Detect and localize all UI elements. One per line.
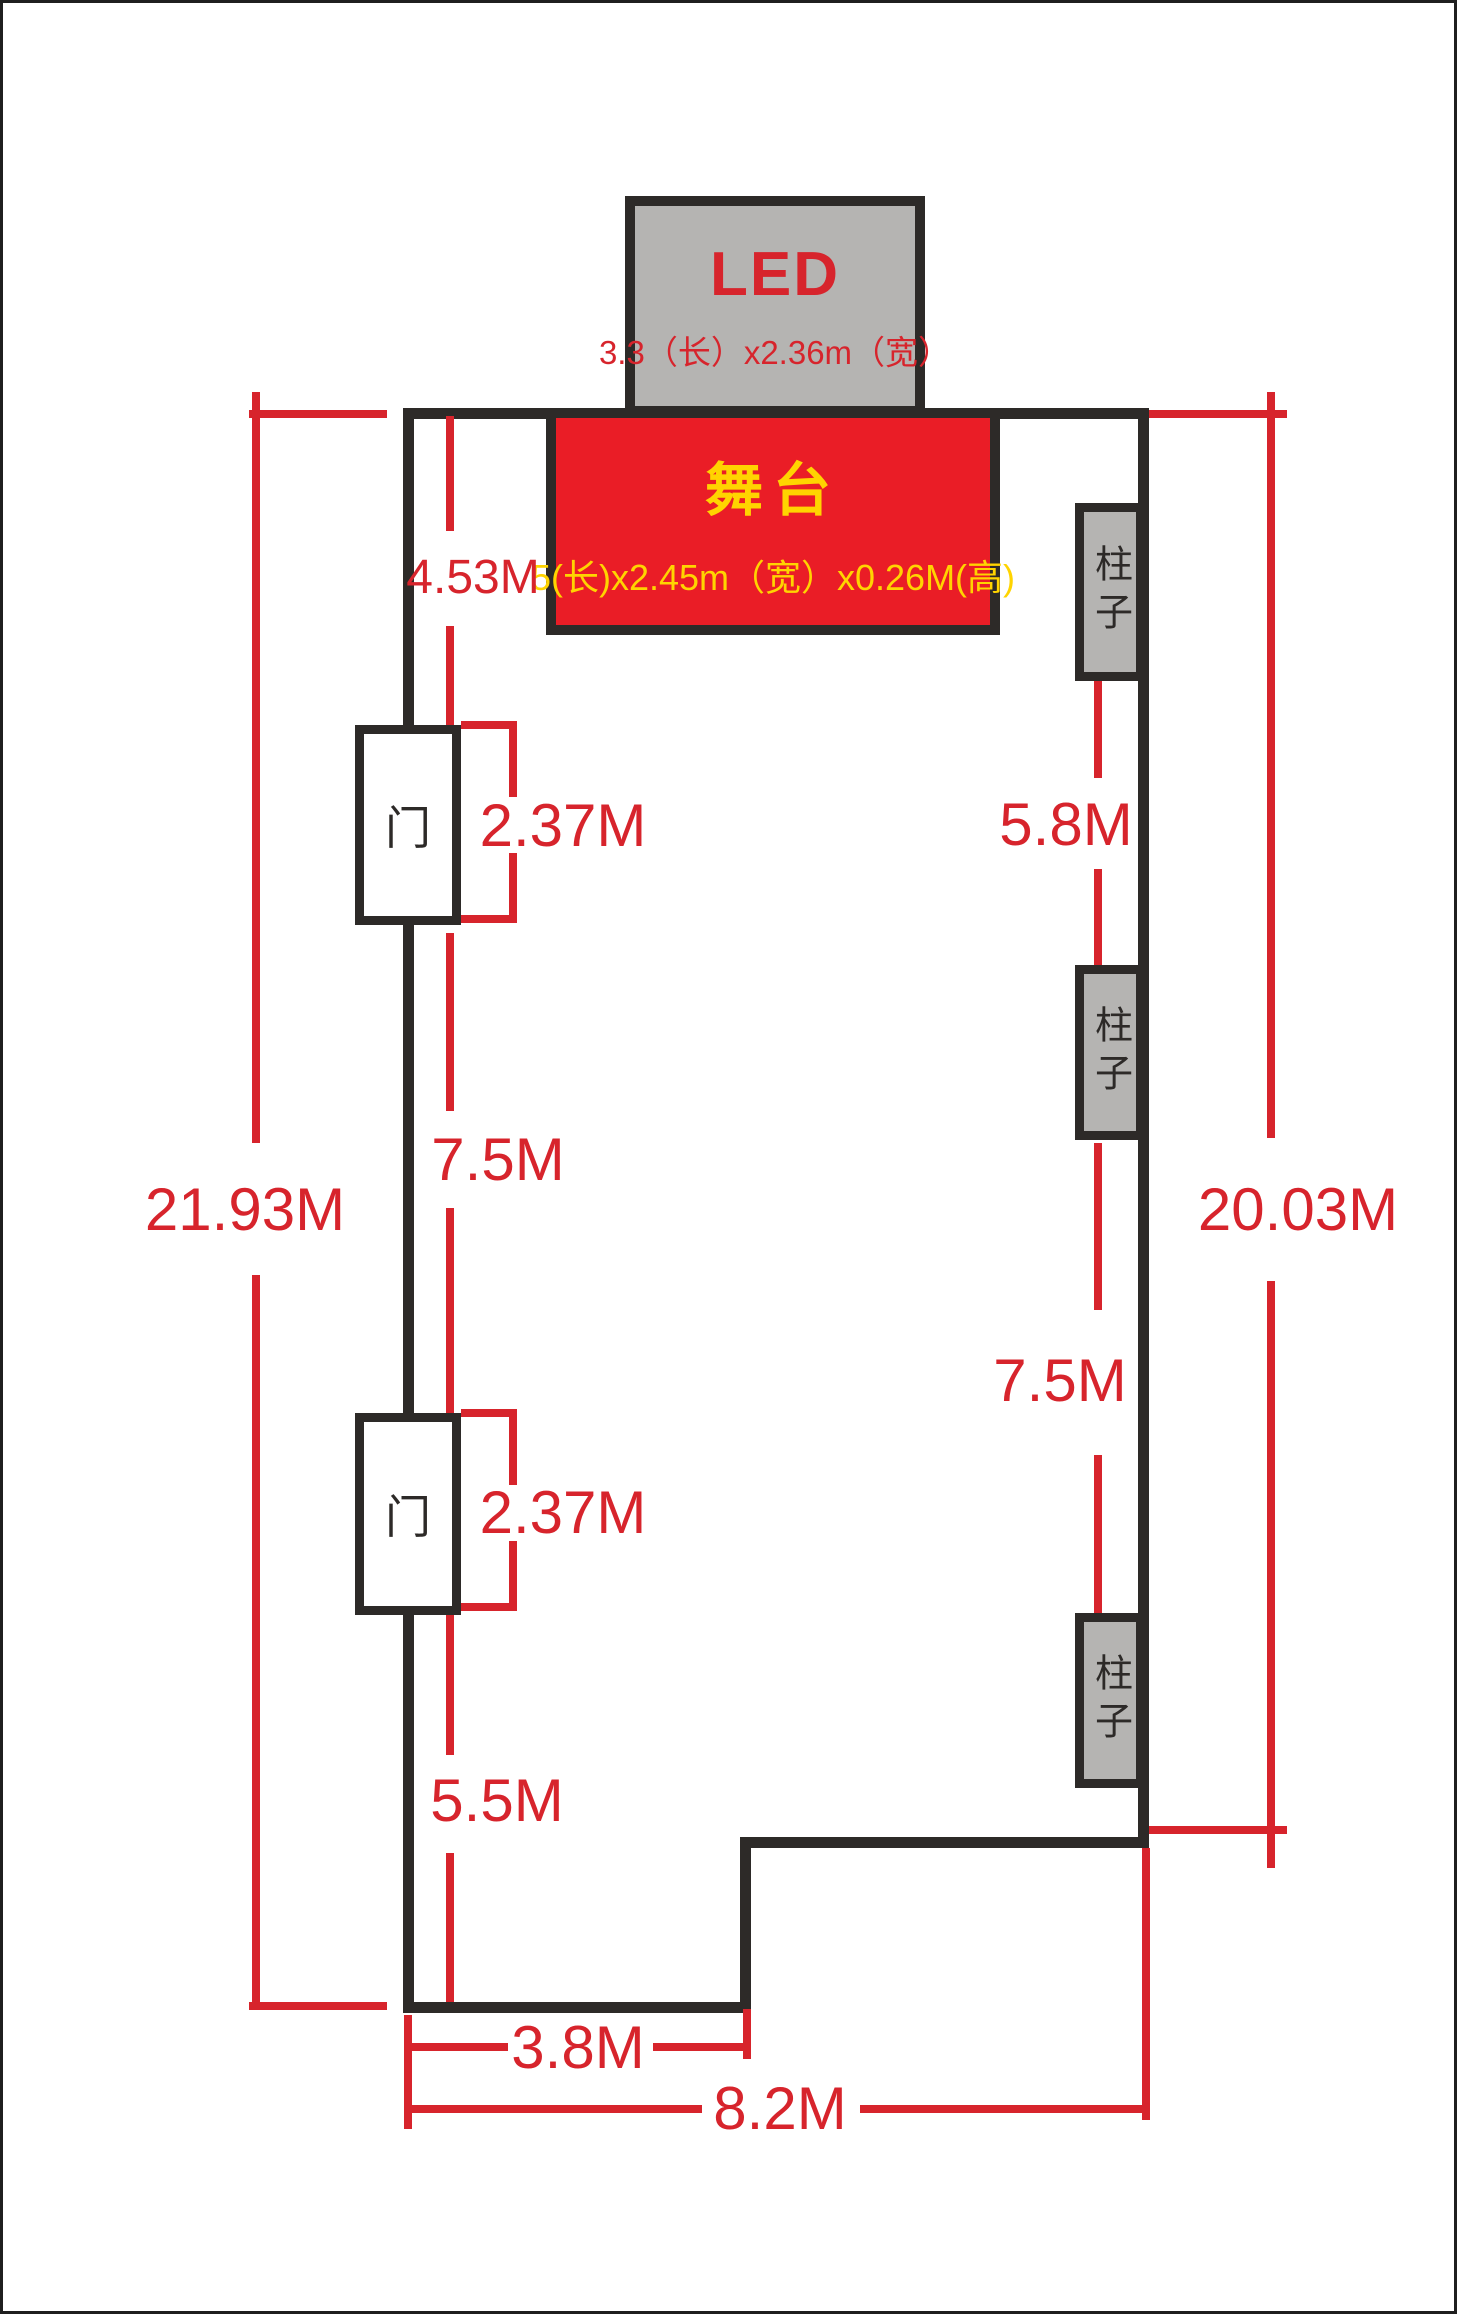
dim-8-2-label: 8.2M — [670, 2079, 890, 2139]
stage: 舞台 5(长)x2.45m（宽）x0.26M(高) — [546, 408, 1000, 635]
dim-8-2-line-a — [412, 2105, 702, 2113]
dim-5-5-label: 5.5M — [387, 1771, 607, 1831]
dim-left-total-line-upper — [252, 410, 260, 1143]
dim-8-2-line-b — [860, 2105, 1147, 2113]
dim-left-7-5-line-b — [446, 1208, 454, 1413]
led-screen: LED 3.3（长）x2.36m（宽） — [625, 196, 925, 416]
dim-door1-line-a — [509, 721, 517, 797]
dim-door1-label: 2.37M — [458, 796, 668, 856]
column-1: 柱子 — [1075, 503, 1145, 681]
dim-door2-label: 2.37M — [458, 1483, 668, 1543]
dim-door2-line-b — [509, 1541, 517, 1611]
dim-right-7-5-label: 7.5M — [950, 1351, 1170, 1411]
column-2-label: 柱子 — [1083, 1005, 1138, 1101]
dim-4-53-line-b — [446, 626, 454, 725]
stage-size-label: 5(长)x2.45m（宽）x0.26M(高) — [531, 549, 1015, 601]
dim-8-2-tick-right — [1142, 1848, 1150, 2120]
dim-right-total-tick-bottom — [1149, 1826, 1287, 1834]
door-1: 门 — [355, 725, 461, 925]
column-1-label: 柱子 — [1083, 544, 1138, 640]
bottom-right-wall — [740, 1837, 1149, 1848]
dim-right-total-line-upper — [1267, 410, 1275, 1138]
dim-door1-line-b — [509, 853, 517, 923]
door-2-label: 门 — [385, 1481, 431, 1547]
led-title: LED — [710, 239, 840, 310]
step-wall — [740, 1837, 751, 2013]
door-1-label: 门 — [385, 792, 431, 858]
dim-5-8-label: 5.8M — [956, 795, 1176, 855]
column-3-label: 柱子 — [1083, 1653, 1138, 1749]
dim-door2-tick-bottom — [461, 1603, 517, 1611]
dim-left-7-5-label: 7.5M — [388, 1130, 608, 1190]
dim-right-7-5-line-a — [1094, 1143, 1102, 1310]
dim-left-total-tick-top — [249, 410, 387, 418]
dim-3-8-label: 3.8M — [468, 2018, 688, 2078]
stage-title: 舞台 — [705, 443, 841, 527]
dim-3-8-tick-right — [743, 2009, 751, 2059]
dim-right-7-5-line-b — [1094, 1455, 1102, 1613]
dim-5-5-line-a — [446, 1615, 454, 1755]
column-3: 柱子 — [1075, 1613, 1145, 1788]
dim-door2-line-a — [509, 1409, 517, 1485]
dim-5-5-line-b — [446, 1853, 454, 2002]
dim-5-8-line-b — [1094, 869, 1102, 965]
dim-5-8-line-a — [1094, 681, 1102, 778]
dim-left-total-line-lower — [252, 1275, 260, 2002]
dim-right-total-line-lower — [1267, 1281, 1275, 1868]
door-2: 门 — [355, 1413, 461, 1615]
dim-4-53-label: 4.53M — [363, 554, 583, 602]
led-size-label: 3.3（长）x2.36m（宽） — [599, 326, 951, 374]
dim-right-total-label: 20.03M — [1168, 1180, 1428, 1240]
column-2: 柱子 — [1075, 965, 1145, 1140]
bottom-left-wall — [403, 2002, 751, 2013]
dim-left-7-5-line-a — [446, 933, 454, 1111]
dim-door1-tick-bottom — [461, 915, 517, 923]
dim-left-total-tick-bottom — [249, 2002, 387, 2010]
floor-plan-canvas: LED 3.3（长）x2.36m（宽） 舞台 5(长)x2.45m（宽）x0.2… — [0, 0, 1457, 2314]
dim-3-8-tick-left — [404, 2015, 412, 2129]
dim-4-53-line-a — [446, 416, 454, 531]
dim-left-total-label: 21.93M — [115, 1180, 375, 1240]
